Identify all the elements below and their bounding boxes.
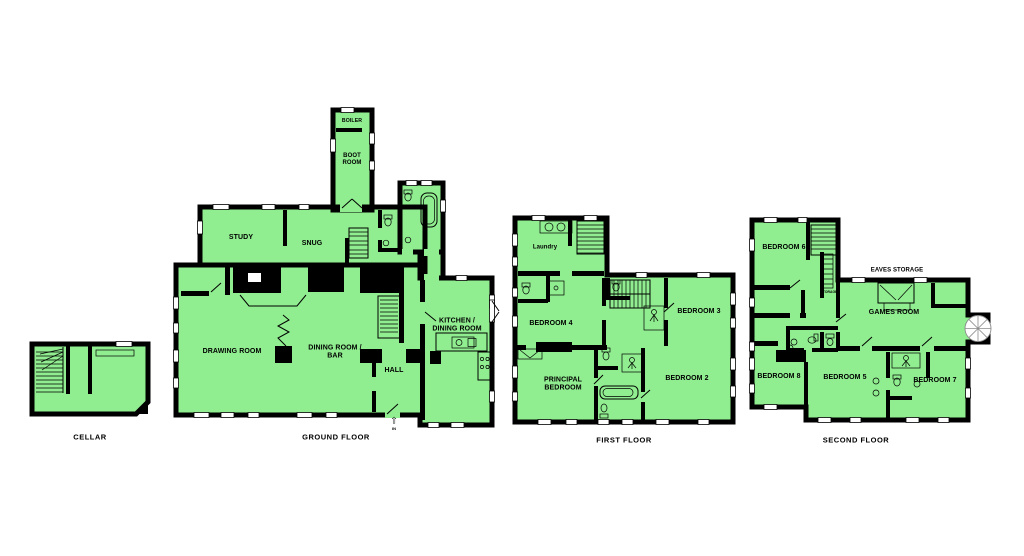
entrance-in-label: IN: [392, 427, 396, 431]
room-label-study: STUDY: [229, 234, 253, 242]
room-label-boiler: BOILER: [342, 118, 362, 124]
room-label-eaves-storage: EAVES STORAGE: [871, 267, 923, 274]
room-label-boot-room: BOOT ROOM: [342, 153, 361, 167]
room-label-bedroom8: BEDROOM 8: [757, 373, 800, 381]
room-label-storage: STORAGE: [821, 290, 838, 294]
cellar-windows: [116, 342, 132, 347]
room-label-games-room: GAMES ROOM: [869, 309, 919, 317]
room-label-bedroom7: BEDROOM 7: [913, 377, 956, 385]
room-label-bedroom2: BEDROOM 2: [665, 375, 708, 383]
floor-title-first: FIRST FLOOR: [596, 436, 652, 445]
room-label-drawing-room: DRAWING ROOM: [203, 348, 262, 356]
floorplan-canvas: BOILER BOOT ROOM STUDY SNUG DRAWING ROOM…: [0, 0, 1024, 556]
room-label-principal-bedroom: PRINCIPAL BEDROOM: [544, 377, 582, 394]
room-label-dining-room-bar: DINING ROOM / BAR: [308, 345, 361, 362]
room-label-snug: SNUG: [302, 240, 323, 248]
entrance-arrow-icon: ⇧: [390, 417, 398, 426]
room-label-bedroom5: BEDROOM 5: [823, 374, 866, 382]
room-label-hall: HALL: [384, 367, 403, 375]
second-spiral-stairs-icon: [965, 316, 991, 342]
floor-title-cellar: CELLAR: [73, 433, 106, 442]
room-label-kitchen-dining: KITCHEN / DINING ROOM: [432, 318, 481, 335]
ground-floorplan: [165, 100, 500, 440]
floor-title-second: SECOND FLOOR: [823, 436, 889, 445]
room-label-bedroom6: BEDROOM 6: [762, 244, 805, 252]
room-label-laundry: Laundry: [533, 244, 557, 251]
floor-title-ground: GROUND FLOOR: [302, 433, 370, 442]
room-label-bedroom3: BEDROOM 3: [677, 308, 720, 316]
room-label-bedroom4: BEDROOM 4: [529, 320, 572, 328]
